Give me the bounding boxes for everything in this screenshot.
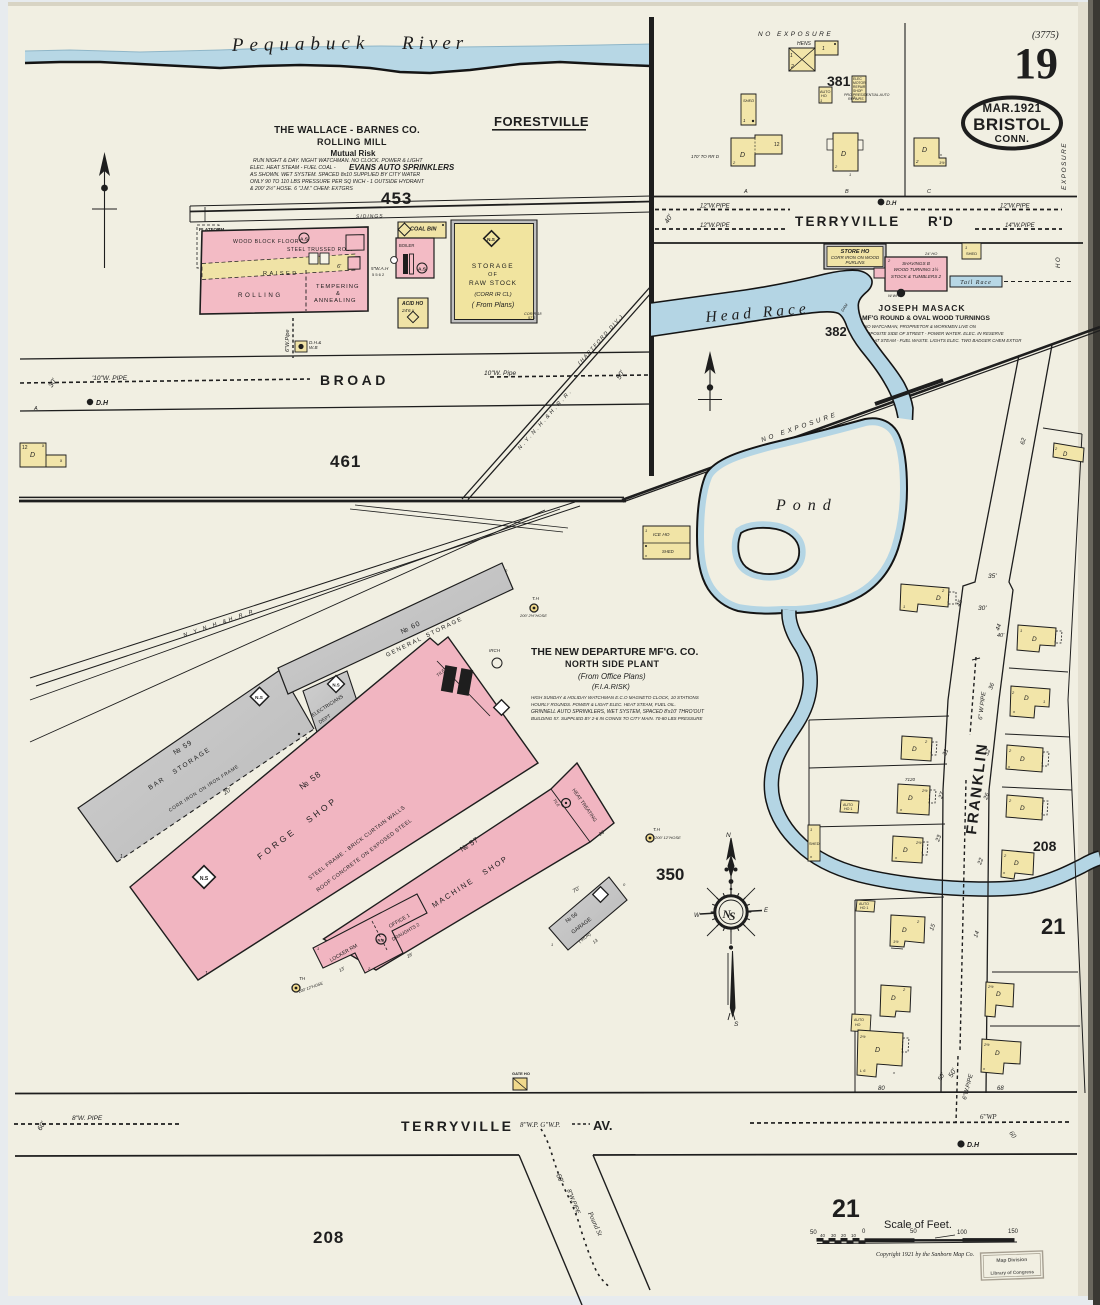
svg-text:40': 40' xyxy=(997,633,1005,639)
svg-text:(CORR IR CL): (CORR IR CL) xyxy=(474,292,511,298)
svg-text:208: 208 xyxy=(1033,838,1057,854)
svg-text:BOILER: BOILER xyxy=(399,243,414,248)
svg-text:RAW STOCK: RAW STOCK xyxy=(469,280,517,287)
svg-text:D.H: D.H xyxy=(886,201,897,207)
svg-text:150: 150 xyxy=(1008,1229,1019,1235)
svg-text:5"W.A.H: 5"W.A.H xyxy=(371,266,389,271)
svg-text:HENS: HENS xyxy=(797,41,812,47)
svg-text:Pequabuck: Pequabuck xyxy=(231,33,371,56)
svg-text:1: 1 xyxy=(822,46,825,52)
svg-text:12: 12 xyxy=(774,142,780,148)
svg-text:ACID HO: ACID HO xyxy=(401,301,423,307)
svg-text:NORTH SIDE PLANT: NORTH SIDE PLANT xyxy=(565,659,660,669)
svg-text:1: 1 xyxy=(903,604,905,609)
svg-text:2: 2 xyxy=(915,159,919,164)
svg-text:(From Office Plans): (From Office Plans) xyxy=(578,672,646,681)
svg-text:MAR.1921: MAR.1921 xyxy=(983,103,1042,115)
svg-text:BROAD: BROAD xyxy=(320,372,389,388)
svg-text:21: 21 xyxy=(832,1195,860,1223)
svg-text:BRISTOL: BRISTOL xyxy=(973,115,1051,134)
svg-text:453: 453 xyxy=(381,189,412,208)
svg-text:1½: 1½ xyxy=(939,160,945,165)
svg-text:NO EXPOSURE: NO EXPOSURE xyxy=(758,31,833,38)
svg-text:D: D xyxy=(1032,636,1037,643)
svg-text:HIGH SUNDAY & HOLIDAY WATCHM: HIGH SUNDAY & HOLIDAY WATCHMAN E.C.O MAG… xyxy=(531,695,699,700)
svg-text:ROLLING: ROLLING xyxy=(238,292,283,299)
svg-text:1: 1 xyxy=(645,528,647,533)
svg-text:2½: 2½ xyxy=(915,840,922,845)
svg-text:1½: 1½ xyxy=(893,939,899,944)
svg-text:1: 1 xyxy=(1043,699,1045,704)
svg-text:AS SHOWN. WET SYSTEM. SPACED 8: AS SHOWN. WET SYSTEM. SPACED 8x10 SUPPLI… xyxy=(249,172,420,178)
svg-text:SHED: SHED xyxy=(966,251,977,256)
svg-text:19: 19 xyxy=(1014,39,1058,88)
svg-text:'10"W. PIPE: '10"W. PIPE xyxy=(92,375,128,382)
svg-text:HO 1: HO 1 xyxy=(844,807,852,811)
svg-text:River: River xyxy=(401,33,468,54)
svg-text:SIDINGS: SIDINGS xyxy=(356,213,384,220)
svg-text:6"W.Pipe: 6"W.Pipe xyxy=(285,329,291,352)
svg-text:30': 30' xyxy=(978,605,987,612)
svg-text:W.B: W.B xyxy=(309,345,318,350)
svg-text:THE WALLACE - BARNES CO.: THE WALLACE - BARNES CO. xyxy=(274,125,420,136)
svg-text:D: D xyxy=(1020,805,1025,812)
svg-text:( From Plans): ( From Plans) xyxy=(472,302,514,309)
svg-text:D: D xyxy=(936,595,941,602)
svg-text:14"W.PIPE: 14"W.PIPE xyxy=(1005,223,1036,229)
svg-text:2½: 2½ xyxy=(983,1042,990,1047)
svg-text:CONN.: CONN. xyxy=(995,134,1030,145)
svg-text:80: 80 xyxy=(878,1086,885,1092)
svg-text:WOOD TURNING 1½: WOOD TURNING 1½ xyxy=(894,266,939,272)
svg-text:50: 50 xyxy=(910,1229,917,1235)
svg-text:100: 100 xyxy=(957,1230,968,1236)
svg-text:D: D xyxy=(1020,756,1025,763)
svg-text:1: 1 xyxy=(790,53,793,59)
svg-text:N.S: N.S xyxy=(332,683,339,688)
svg-text:T.H: T.H xyxy=(532,596,540,601)
svg-text:2: 2 xyxy=(790,64,794,70)
svg-text:35': 35' xyxy=(988,573,997,580)
svg-text:IRCH: IRCH xyxy=(489,648,501,653)
svg-text:(3775): (3775) xyxy=(1032,30,1059,41)
svg-text:HEAT STEAM - FUEL WASTE. LIGHT: HEAT STEAM - FUEL WASTE. LIGHTS ELEC. TW… xyxy=(868,338,1022,343)
svg-text:1: 1 xyxy=(317,946,319,951)
svg-text:EVANS AUTO SPRINKLERS: EVANS AUTO SPRINKLERS xyxy=(349,163,455,172)
svg-text:1: 1 xyxy=(551,942,553,947)
svg-text:10: 10 xyxy=(851,1233,857,1238)
svg-text:30: 30 xyxy=(831,1233,837,1238)
svg-text:D: D xyxy=(841,151,846,158)
svg-text:&: & xyxy=(336,291,340,297)
svg-text:A.S: A.S xyxy=(418,267,427,273)
svg-text:21: 21 xyxy=(1041,914,1065,939)
svg-text:N.S: N.S xyxy=(378,938,385,943)
svg-text:200' 12"HOSE: 200' 12"HOSE xyxy=(654,835,681,840)
svg-text:L 6: L 6 xyxy=(860,1068,866,1073)
svg-text:1: 1 xyxy=(120,854,123,860)
svg-text:TERRYVILLE: TERRYVILLE xyxy=(401,1118,514,1134)
svg-text:JOSEPH MASACK: JOSEPH MASACK xyxy=(878,303,965,313)
svg-text:7120: 7120 xyxy=(905,777,916,782)
svg-text:REPAIRS: REPAIRS xyxy=(848,97,864,101)
svg-text:N.S: N.S xyxy=(200,876,209,882)
svg-text:D.H: D.H xyxy=(967,1142,980,1149)
svg-text:FORESTVILLE: FORESTVILLE xyxy=(494,114,589,129)
svg-text:12: 12 xyxy=(22,445,28,451)
svg-text:BUILDING 57. SUPPLIED BY 2-6: BUILDING 57. SUPPLIED BY 2-6 IN CONNS TO… xyxy=(531,716,704,721)
svg-text:50: 50 xyxy=(810,1230,817,1236)
svg-text:D.H: D.H xyxy=(96,400,109,407)
svg-text:1: 1 xyxy=(1020,628,1022,633)
svg-text:SHED: SHED xyxy=(662,549,674,554)
svg-text:D: D xyxy=(1014,860,1019,867)
svg-text:SHED: SHED xyxy=(743,98,754,103)
svg-text:Map Division: Map Division xyxy=(996,1257,1027,1264)
svg-text:STOCK & TUMBLERS 2: STOCK & TUMBLERS 2 xyxy=(891,274,942,279)
svg-text:D: D xyxy=(1063,452,1068,458)
svg-text:A: A xyxy=(33,406,38,412)
svg-text:1: 1 xyxy=(849,172,851,177)
svg-text:STEEL TRUSSED ROOF: STEEL TRUSSED ROOF xyxy=(287,247,354,253)
svg-text:D: D xyxy=(908,795,913,802)
svg-text:TEMPERING: TEMPERING xyxy=(316,284,359,290)
svg-text:Mutual Risk: Mutual Risk xyxy=(331,149,376,158)
svg-text:D: D xyxy=(1024,695,1029,702)
svg-text:OF: OF xyxy=(488,272,498,278)
svg-text:S: S xyxy=(734,1021,739,1028)
svg-text:24' HO: 24' HO xyxy=(924,251,937,256)
svg-text:N: N xyxy=(726,832,731,839)
svg-text:D: D xyxy=(912,746,917,753)
svg-text:D: D xyxy=(30,452,35,459)
svg-text:x: x xyxy=(940,152,942,157)
svg-text:W.WH: W.WH xyxy=(888,294,899,298)
svg-text:20: 20 xyxy=(841,1233,847,1238)
svg-text:12"W.PIPE: 12"W.PIPE xyxy=(700,223,731,229)
svg-text:1: 1 xyxy=(205,971,208,977)
svg-text:D: D xyxy=(891,995,896,1002)
svg-text:1: 1 xyxy=(965,245,967,250)
svg-text:N.S: N.S xyxy=(255,695,263,700)
svg-text:350: 350 xyxy=(656,865,684,884)
svg-text:461: 461 xyxy=(330,452,361,471)
svg-text:D: D xyxy=(996,991,1001,998)
svg-text:EXPOSURE: EXPOSURE xyxy=(1061,142,1068,190)
svg-text:ELEC. HEAT STEAM - FUEL COAL: ELEC. HEAT STEAM - FUEL COAL - xyxy=(250,165,336,171)
svg-text:1: 1 xyxy=(810,827,812,832)
svg-text:AV.: AV. xyxy=(593,1118,613,1133)
svg-text:208: 208 xyxy=(313,1228,344,1247)
svg-text:2½: 2½ xyxy=(921,788,928,793)
svg-text:382: 382 xyxy=(825,324,847,339)
svg-text:8"W.P. G"W.P.: 8"W.P. G"W.P. xyxy=(520,1121,561,1129)
svg-text:2½: 2½ xyxy=(987,984,994,989)
svg-text:6"WP: 6"WP xyxy=(980,1113,997,1121)
svg-text:S: S xyxy=(729,911,735,923)
svg-text:A.S: A.S xyxy=(300,237,309,243)
svg-text:MF'G ROUND & OVAL WOOD TURNING: MF'G ROUND & OVAL WOOD TURNINGS xyxy=(862,315,990,322)
svg-text:2½: 2½ xyxy=(859,1034,866,1039)
svg-text:GRINNELL AUTO SPRINKLERS, WET: GRINNELL AUTO SPRINKLERS, WET SYSTEM, SP… xyxy=(531,709,705,715)
svg-text:D: D xyxy=(875,1047,880,1054)
svg-text:GATE HO: GATE HO xyxy=(512,1071,530,1076)
svg-text:N.S: N.S xyxy=(487,237,495,242)
svg-text:H O: H O xyxy=(1056,257,1062,268)
svg-text:COAL BIN: COAL BIN xyxy=(410,227,438,233)
svg-text:D: D xyxy=(903,847,908,854)
svg-text:Pond: Pond xyxy=(775,497,838,514)
svg-text:ANNEALING: ANNEALING xyxy=(314,298,357,304)
svg-text:NO WATCHMAN, PROPRIETOR & WOR: NO WATCHMAN, PROPRIETOR & WORKMEN LIVE O… xyxy=(864,324,977,329)
svg-text:T.H: T.H xyxy=(653,827,661,832)
svg-text:& 200' 2½" HOSE. 6 "J.M." CHEM: & 200' 2½" HOSE. 6 "J.M." CHEM: EXTGRS xyxy=(250,185,353,192)
svg-text:5 5 6 2: 5 5 6 2 xyxy=(372,272,385,277)
svg-text:200' 2½"HOSE: 200' 2½"HOSE xyxy=(519,613,547,618)
svg-text:40: 40 xyxy=(820,1233,826,1238)
svg-text:D: D xyxy=(902,927,907,934)
svg-text:(F.I.A.RISK): (F.I.A.RISK) xyxy=(592,682,630,691)
svg-text:HO 1: HO 1 xyxy=(860,906,868,910)
svg-text:TERRYVILLE: TERRYVILLE xyxy=(795,214,901,229)
svg-text:8"W. PIPE: 8"W. PIPE xyxy=(72,1115,103,1122)
svg-text:68: 68 xyxy=(997,1086,1004,1092)
svg-text:12"W.PIPE: 12"W.PIPE xyxy=(700,204,731,210)
svg-text:THE NEW DEPARTURE MF'G. CO.: THE NEW DEPARTURE MF'G. CO. xyxy=(531,647,698,658)
svg-text:R'D: R'D xyxy=(928,214,954,229)
svg-text:TH: TH xyxy=(299,976,306,981)
svg-text:HO: HO xyxy=(855,1023,861,1027)
svg-text:STORAGE: STORAGE xyxy=(472,263,514,270)
svg-text:ICE HO: ICE HO xyxy=(653,532,670,538)
svg-text:AUTO: AUTO xyxy=(854,1018,864,1022)
svg-text:A: A xyxy=(743,189,748,195)
svg-text:OPPOSITE SIDE OF STREET - POW: OPPOSITE SIDE OF STREET - POWER WATER. E… xyxy=(864,331,1004,336)
svg-text:ONLY 90 TO 110 LBS PRESSURE P: ONLY 90 TO 110 LBS PRESSURE PER SQ INCH … xyxy=(250,179,425,185)
svg-text:Tail Race: Tail Race xyxy=(960,280,992,286)
svg-text:57 6: 57 6 xyxy=(528,316,536,320)
svg-text:HOURLY ROUNDS. POWER & LIGHT: HOURLY ROUNDS. POWER & LIGHT ELEC. HEAT … xyxy=(531,702,676,707)
svg-text:10"W. Pipe: 10"W. Pipe xyxy=(484,370,516,377)
svg-text:PURLINS: PURLINS xyxy=(845,260,864,265)
svg-text:C: C xyxy=(927,189,931,195)
svg-text:1: 1 xyxy=(820,98,822,103)
svg-text:D: D xyxy=(922,147,927,154)
svg-text:WOOD BLOCK FLOOR: WOOD BLOCK FLOOR xyxy=(233,239,299,245)
svg-text:SHED: SHED xyxy=(809,842,820,846)
svg-text:RAISED: RAISED xyxy=(263,271,299,277)
svg-text:SHAVINGS B: SHAVINGS B xyxy=(902,261,930,266)
svg-text:D: D xyxy=(995,1050,1000,1057)
svg-text:12"W.PIPE: 12"W.PIPE xyxy=(1000,204,1031,210)
svg-text:ROLLING MILL: ROLLING MILL xyxy=(317,137,387,147)
svg-text:170' TO RR D: 170' TO RR D xyxy=(691,154,720,159)
svg-text:B: B xyxy=(845,189,849,195)
svg-text:Scale of Feet.: Scale of Feet. xyxy=(884,1219,952,1231)
svg-text:Copyright 1921 by the Sanborn: Copyright 1921 by the Sanborn Map Co. xyxy=(876,1252,974,1258)
svg-text:D: D xyxy=(740,152,745,159)
